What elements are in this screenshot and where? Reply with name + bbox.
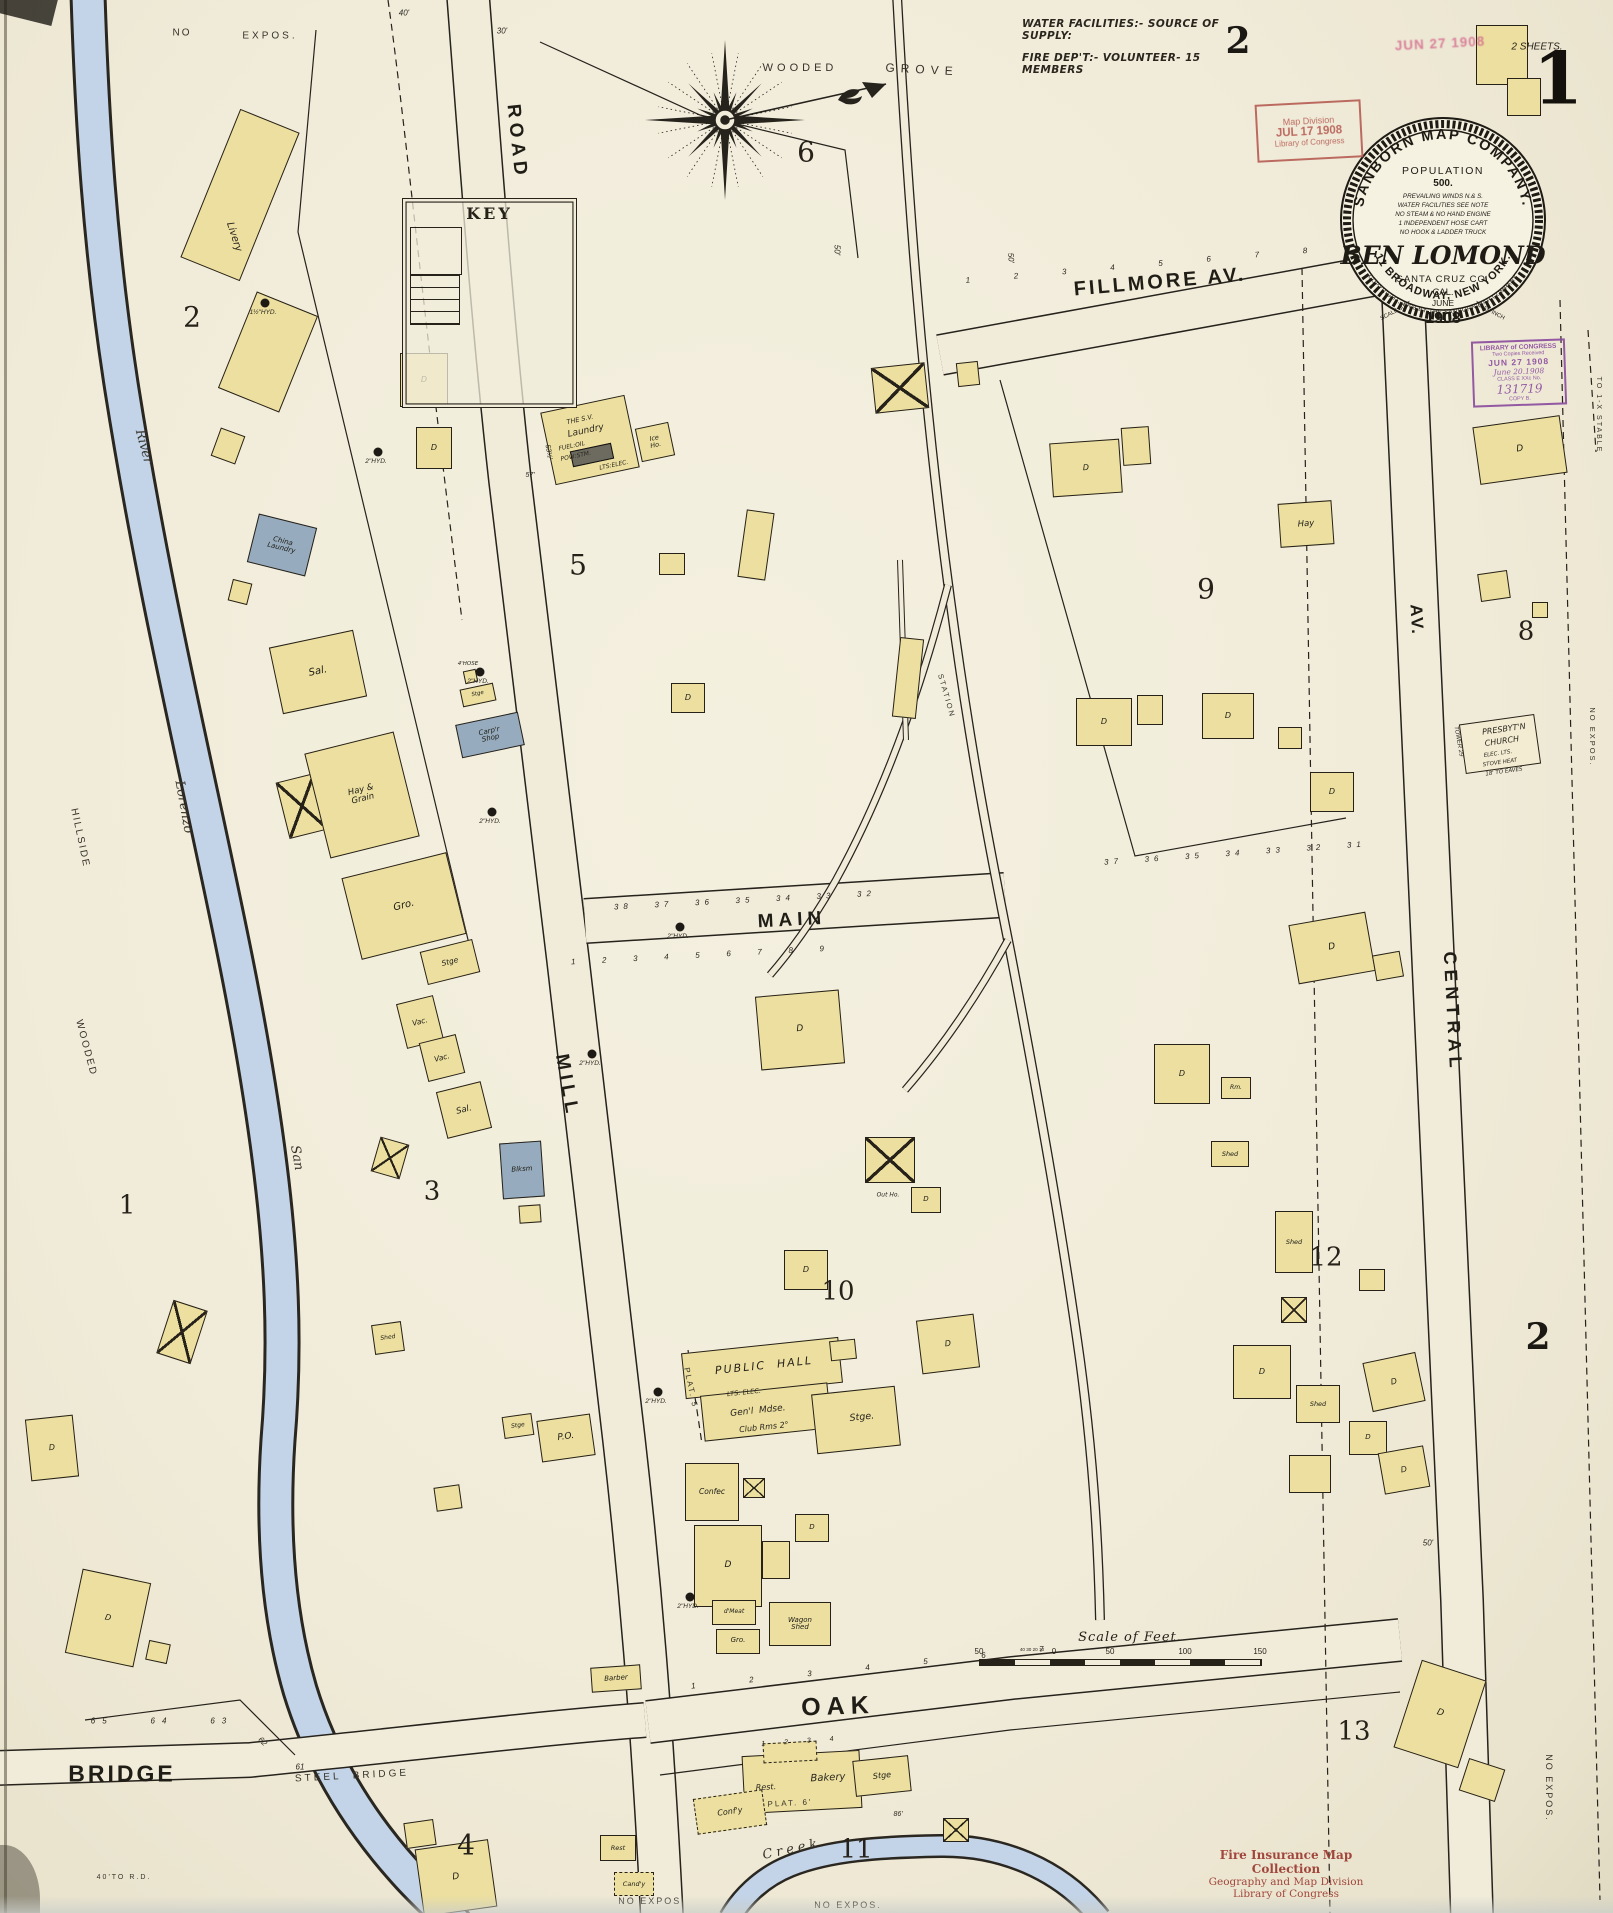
building-footprint — [433, 1484, 462, 1511]
seal-info-line: 1 INDEPENDENT HOSE CART — [1399, 220, 1489, 227]
building-footprint: Rest — [600, 1835, 636, 1861]
map-label: NO EXPOS. — [814, 1901, 882, 1911]
seal-month: JUNE — [1432, 298, 1455, 308]
map-label: 30' — [497, 28, 507, 37]
fire-hydrant-dot — [654, 1388, 663, 1397]
map-label: 86' — [893, 1811, 902, 1819]
building-footprint: P.O. — [536, 1413, 595, 1462]
map-key-legend: KEY — [402, 198, 577, 408]
map-label: AV. — [1406, 604, 1426, 636]
map-label: 12 — [1309, 1244, 1342, 1273]
fire-hydrant-dot — [676, 923, 685, 932]
building-footprint — [1359, 1269, 1385, 1291]
map-label: San — [287, 1144, 305, 1171]
building-footprint — [762, 1541, 790, 1579]
building-footprint — [865, 1137, 915, 1183]
fire-hydrant-label: 1½"HYD. — [250, 309, 277, 316]
map-label: 2 — [183, 303, 201, 334]
building-footprint: D — [1076, 698, 1132, 746]
fire-hydrant-label: 2"HYD. — [667, 933, 688, 940]
fire-hydrant-label: 2"HYD. — [645, 1398, 666, 1405]
river — [88, 0, 456, 1913]
fire-hydrant-label: 2"HYD. — [365, 458, 386, 465]
building-footprint: D — [1472, 415, 1567, 485]
map-label: 50' — [1423, 1540, 1433, 1549]
fire-hydrant-dot — [261, 299, 270, 308]
building-footprint: D — [911, 1187, 941, 1213]
building-footprint: Wagon Shed — [769, 1602, 831, 1646]
seal-population-label: POPULATION — [1402, 165, 1484, 177]
building-footprint: Rm. — [1221, 1077, 1251, 1099]
seal-info-line: NO HOOK & LADDER TRUCK — [1400, 229, 1487, 236]
building-footprint — [1532, 602, 1548, 618]
building-footprint — [1281, 1297, 1307, 1323]
map-label: 11 — [839, 1836, 872, 1865]
map-label: 1 — [119, 1192, 136, 1221]
map-label: MAIN — [757, 909, 827, 933]
building-footprint: Hay — [1278, 500, 1335, 548]
stamp-line: Fire Insurance Map Collection — [1196, 1848, 1376, 1876]
collection-stamp: Fire Insurance Map Collection Geography … — [1196, 1848, 1376, 1900]
fire-hydrant-label: 2"HYD. — [677, 1603, 698, 1610]
map-label: Rest. — [756, 1783, 777, 1793]
sanborn-seal: SANBORN MAP COMPANY. 11 BROADWAY, NEW YO… — [1337, 112, 1549, 336]
building-footprint: Blksm — [499, 1141, 545, 1200]
map-label: WOODED — [763, 62, 838, 74]
building-footprint: Barber — [590, 1664, 642, 1692]
seal-info-line: PREVAILING WINDS N.& S. — [1403, 193, 1483, 200]
map-label: 4'HOSE — [458, 661, 478, 667]
fire-hydrant-dot — [588, 1050, 597, 1059]
fire-hydrant-dot — [488, 808, 497, 817]
library-of-congress-stamp: LIBRARY of CONGRESS Two Copies Received … — [1471, 338, 1567, 407]
building-footprint: D — [916, 1314, 980, 1375]
map-label: 50' — [1005, 252, 1015, 263]
building-footprint — [743, 1478, 765, 1498]
building-footprint: D — [1049, 439, 1123, 498]
map-label: BRIDGE — [68, 1761, 175, 1786]
scale-bar: Scale of Feet. 5040 30 20 10050100150 — [962, 1630, 1298, 1672]
map-label: 3 — [424, 1178, 441, 1207]
map-label: 6 — [797, 138, 815, 169]
building-footprint: D — [1349, 1421, 1387, 1455]
seal-population-value: 500. — [1433, 178, 1453, 189]
building-footprint: D — [1233, 1345, 1291, 1399]
seal-info-line: WATER FACILITIES SEE NOTE — [1398, 202, 1489, 209]
map-label: 50' — [832, 245, 841, 255]
map-label: 65 64 63 — [91, 1718, 233, 1727]
building-footprint — [1121, 426, 1152, 466]
map-label: 40'TO R.D. — [97, 1874, 152, 1882]
building-footprint: Ice Ho. — [635, 422, 675, 462]
building-footprint: D — [1310, 772, 1354, 812]
map-label: 40' — [399, 10, 409, 19]
map-label: NO — [173, 28, 192, 39]
key-side-box — [410, 227, 462, 275]
building-footprint — [871, 362, 930, 413]
map-label: NO EXPOS. — [1543, 1754, 1553, 1822]
building-footprint: Confec — [685, 1463, 739, 1521]
scale-tick: 0 — [1052, 1647, 1056, 1656]
map-label: EXPOS. — [242, 31, 297, 42]
building-footprint — [403, 1819, 436, 1849]
building-footprint: Shed — [1211, 1141, 1249, 1167]
scale-tick: 40 30 20 10 — [1020, 1647, 1044, 1652]
map-label: 8 — [1518, 618, 1535, 647]
map-label: NO EXPOS. — [1588, 707, 1596, 766]
building-footprint: d'Meat — [712, 1600, 756, 1625]
building-footprint: D — [755, 989, 845, 1070]
seal-state: CAL. — [1432, 287, 1453, 298]
building-footprint: D — [1378, 1445, 1431, 1494]
seal-year: 1908 — [1425, 310, 1461, 327]
building-footprint: D — [671, 683, 705, 713]
map-label: OAK — [801, 1692, 875, 1722]
building-footprint — [1289, 1455, 1331, 1493]
fire-hydrant-label: 2"HYD. — [479, 818, 500, 825]
key-symbol-box — [410, 275, 460, 325]
building-footprint: Shed — [1275, 1211, 1313, 1273]
building-footprint — [829, 1339, 857, 1362]
sheet-number: 1 — [1533, 36, 1583, 121]
building-footprint: Stge — [502, 1413, 535, 1439]
map-label: 61 — [296, 1764, 305, 1773]
scale-title: Scale of Feet. — [1078, 1630, 1182, 1645]
received-stamp: Map Division JUL 17 1908 Library of Cong… — [1255, 99, 1364, 162]
map-label: 2 — [1525, 1318, 1550, 1358]
scale-ruler — [979, 1659, 1262, 1666]
building-footprint: D — [25, 1415, 79, 1482]
scale-tick: 100 — [1178, 1647, 1191, 1656]
building-footprint: Gro. — [716, 1629, 760, 1654]
building-footprint — [518, 1204, 541, 1223]
building-footprint — [1372, 951, 1404, 981]
map-label: 57' — [525, 472, 534, 480]
building-footprint: Shed — [1296, 1385, 1340, 1423]
map-label: 13 — [1337, 1718, 1370, 1747]
stamp-line: Library of Congress — [1196, 1888, 1376, 1900]
building-footprint: D — [1154, 1044, 1210, 1104]
key-title: KEY — [403, 204, 576, 223]
scale-tick: 50 — [975, 1647, 984, 1656]
building-footprint — [943, 1818, 969, 1842]
map-label: 5 — [569, 551, 587, 582]
map-label: 10 — [821, 1278, 854, 1307]
building-footprint — [1477, 570, 1511, 602]
seal-city: BEN LOMOND — [1339, 241, 1545, 270]
stamp-line: Geography and Map Division — [1196, 1876, 1376, 1888]
building-footprint: D — [415, 1839, 498, 1913]
building-footprint — [1137, 695, 1163, 725]
fire-hydrant-dot — [476, 668, 485, 677]
fire-hydrant-label: 2"HYD. — [579, 1060, 600, 1067]
building-footprint — [1278, 727, 1302, 749]
building-footprint: Stge — [852, 1755, 911, 1797]
fire-hydrant-dot — [686, 1593, 695, 1602]
notes-block: WATER FACILITIES:- SOURCE OF SUPPLY: FIR… — [1022, 18, 1237, 78]
fire-dept-title: FIRE DEP'T:- VOLUNTEER- 15 MEMBERS — [1022, 52, 1237, 76]
map-label: Out Ho. — [877, 1193, 900, 1200]
map-label: Bakery — [810, 1772, 845, 1785]
map-label: 4 — [457, 1831, 475, 1862]
building-footprint: D — [1202, 693, 1254, 739]
building-footprint: D — [416, 427, 452, 469]
building-footprint — [659, 553, 685, 575]
scale-tick: 150 — [1253, 1647, 1266, 1656]
fire-hydrant-dot — [374, 448, 383, 457]
building-footprint — [956, 361, 980, 387]
building-footprint: D — [795, 1514, 829, 1542]
scale-tick: 50 — [1106, 1647, 1115, 1656]
building-footprint: Shed — [371, 1321, 405, 1355]
map-label: NO EXPOS. — [618, 1897, 686, 1907]
seal-info-line: NO STEAM & NO HAND ENGINE — [1395, 211, 1491, 218]
water-facilities-title: WATER FACILITIES:- SOURCE OF SUPPLY: — [1022, 18, 1237, 42]
sanborn-map-sheet: SANBORN MAP COMPANY. 11 BROADWAY, NEW YO… — [0, 0, 1613, 1913]
building-footprint — [145, 1640, 171, 1664]
fire-hydrant-label: 2"HYD. — [467, 678, 488, 685]
seal-county: SANTA CRUZ CO. — [1397, 274, 1490, 285]
map-label: TO 1-X STABLE — [1594, 377, 1602, 454]
map-label: 9 — [1197, 575, 1215, 606]
building-footprint: Cand'y — [614, 1872, 654, 1896]
building-footprint: D — [694, 1525, 762, 1607]
